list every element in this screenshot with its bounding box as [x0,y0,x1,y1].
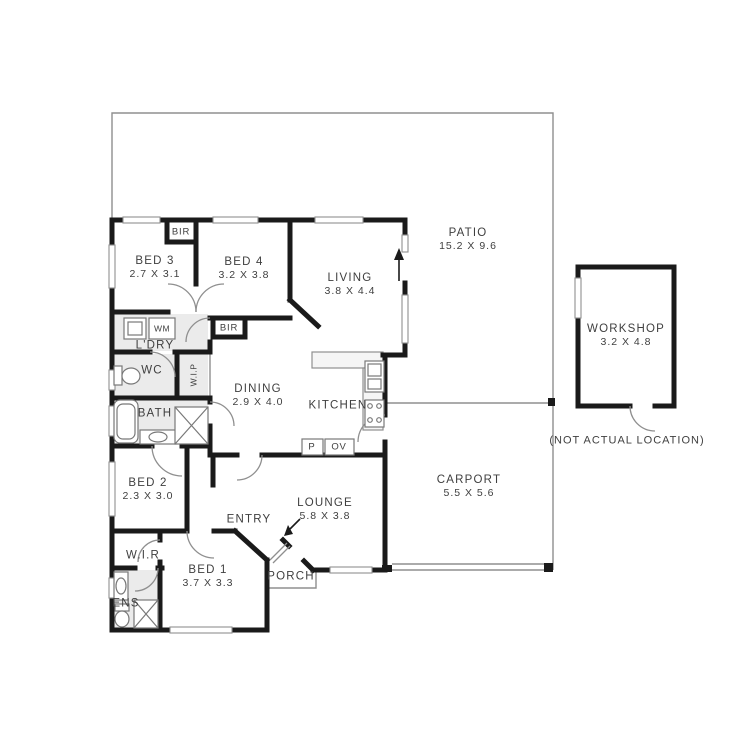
kitchen-stove [365,400,384,427]
lounge-window [330,567,372,573]
room-label-bed4: BED 4 3.2 X 3.8 [218,256,269,282]
fixture-label-bir-1: BIR [172,226,190,239]
bed2-window [109,462,115,516]
room-label-ens: ENS [112,598,139,611]
bed3-side-window [109,245,115,288]
room-label-dining: DINING 2.9 X 4.0 [232,383,283,409]
ens-basin [116,578,126,594]
wc-toilet-tank [114,366,122,385]
living-side-window-1 [402,235,408,252]
bed3-window [123,217,160,223]
room-label-lounge: LOUNGE 5.8 X 3.8 [297,497,353,523]
room-label-bed2: BED 2 2.3 X 3.0 [122,477,173,503]
bed3-door-arc [168,284,196,312]
carport-door-line [392,564,549,570]
room-label-carport: CARPORT 5.5 X 5.6 [437,474,501,500]
bed2-door-arc [152,446,182,476]
workshop-location-note: (NOT ACTUAL LOCATION) [549,435,704,448]
bed1-window [170,627,232,633]
room-label-laundry: L'DRY [136,340,175,353]
fixture-label-bir-2: BIR [220,322,238,335]
room-label-wip: W.I.P [188,364,201,387]
bed1-door-arc [187,531,214,558]
dining-lounge-door-arc [237,455,262,480]
room-label-entry: ENTRY [227,514,272,527]
fixture-label-wm: WM [154,323,170,336]
floor-plan-drawing [0,0,750,750]
room-label-living: LIVING 3.8 X 4.4 [324,272,375,298]
ens-toilet-bowl [115,611,129,627]
room-label-patio: PATIO 15.2 X 9.6 [439,227,497,253]
workshop-window [575,278,581,318]
floor-plan: BED 3 2.7 X 3.1 BED 4 3.2 X 3.8 LIVING 3… [0,0,750,750]
room-label-bed3: BED 3 2.7 X 3.1 [129,255,180,281]
room-label-wir: W.I.R [126,550,160,563]
fixture-label-oven: OV [331,441,346,454]
bed4-window [213,217,258,223]
room-label-porch: PORCH [267,571,315,584]
wc-toilet-bowl [122,368,140,384]
room-label-kitchen: KITCHEN [309,400,368,413]
fixture-label-pantry: P [308,441,315,454]
living-side-window-2 [402,295,408,343]
room-label-bed1: BED 1 3.7 X 3.3 [182,564,233,590]
room-label-wc: WC [141,365,163,378]
room-label-workshop: WORKSHOP 3.2 X 4.8 [587,323,665,349]
bath-basin [149,432,167,442]
living-window [315,217,363,223]
bed4-door-arc [196,284,224,312]
bath-door-arc [210,402,234,426]
room-label-bath: BATH [138,408,173,421]
workshop-door-arc [630,406,655,431]
